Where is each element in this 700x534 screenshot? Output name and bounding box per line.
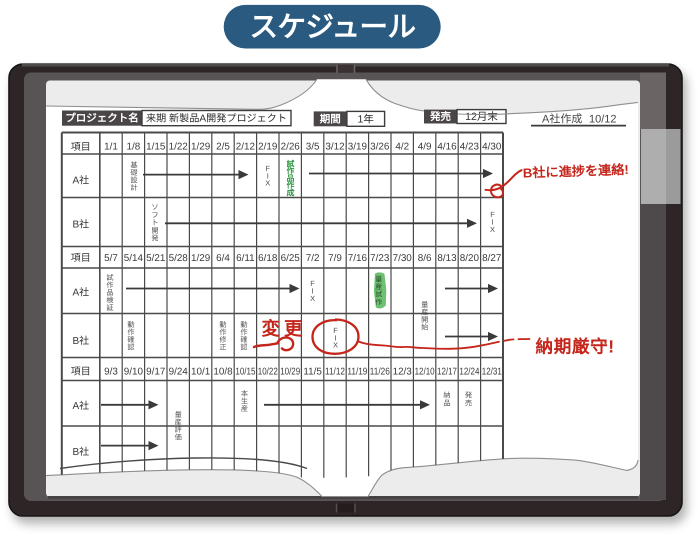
svg-text:動作確認: 動作確認: [240, 320, 247, 351]
svg-text:4/30: 4/30: [482, 142, 502, 153]
svg-text:量産試作: 量産試作: [375, 276, 382, 307]
svg-text:7/16: 7/16: [348, 253, 368, 264]
svg-text:スケジュール: スケジュール: [249, 12, 415, 44]
svg-text:3/26: 3/26: [370, 142, 390, 153]
svg-text:項目: 項目: [71, 253, 91, 264]
svg-text:12/24: 12/24: [459, 367, 479, 378]
svg-text:12/10: 12/10: [415, 367, 435, 378]
svg-text:5/14: 5/14: [124, 253, 144, 264]
svg-text:11/19: 11/19: [347, 367, 367, 378]
svg-text:5/28: 5/28: [169, 253, 189, 264]
svg-text:12/17: 12/17: [437, 367, 457, 378]
svg-text:4/9: 4/9: [418, 142, 432, 153]
svg-text:5/21: 5/21: [146, 253, 166, 264]
svg-text:項目: 項目: [71, 367, 91, 378]
svg-text:納品: 納品: [443, 391, 450, 408]
svg-text:7/9: 7/9: [328, 253, 342, 264]
svg-text:発売: 発売: [429, 110, 451, 123]
svg-text:1/29: 1/29: [191, 142, 211, 153]
svg-text:9/3: 9/3: [104, 367, 118, 378]
svg-text:B社: B社: [72, 446, 89, 458]
svg-text:2/5: 2/5: [216, 142, 230, 153]
svg-text:A社: A社: [72, 175, 89, 187]
svg-text:8/27: 8/27: [482, 253, 501, 264]
svg-text:11/26: 11/26: [370, 367, 390, 378]
svg-text:来期 新製品A開発プロジェクト: 来期 新製品A開発プロジェクト: [146, 112, 287, 124]
svg-text:基礎設計: 基礎設計: [130, 161, 137, 192]
svg-text:納期厳守!: 納期厳守!: [536, 337, 615, 357]
svg-text:7/2: 7/2: [306, 253, 320, 264]
svg-text:7/23: 7/23: [370, 253, 390, 264]
svg-text:12/31: 12/31: [482, 367, 502, 378]
svg-text:9/10: 9/10: [124, 367, 144, 378]
svg-text:10/22: 10/22: [258, 367, 278, 378]
svg-text:10/12: 10/12: [589, 114, 617, 126]
svg-text:12/3: 12/3: [393, 367, 413, 378]
svg-text:A社: A社: [72, 286, 89, 298]
svg-text:1/29: 1/29: [191, 253, 211, 264]
svg-text:試作品検証: 試作品検証: [106, 273, 114, 312]
svg-text:量産評価: 量産評価: [175, 410, 182, 441]
svg-text:1/15: 1/15: [146, 142, 166, 153]
svg-text:4/16: 4/16: [437, 142, 457, 153]
svg-text:9/24: 9/24: [169, 367, 189, 378]
svg-text:1年: 1年: [358, 113, 375, 125]
svg-text:量産開始: 量産開始: [421, 300, 428, 331]
svg-text:8/13: 8/13: [437, 253, 457, 264]
svg-text:2/26: 2/26: [281, 142, 301, 153]
svg-text:4/23: 4/23: [460, 142, 480, 153]
svg-text:4/2: 4/2: [395, 142, 409, 153]
svg-text:プロジェクト名: プロジェクト名: [65, 112, 139, 125]
svg-text:11/5: 11/5: [303, 367, 322, 378]
svg-text:8/20: 8/20: [460, 253, 480, 264]
svg-text:3/12: 3/12: [325, 142, 344, 153]
svg-text:1/22: 1/22: [169, 142, 188, 153]
svg-text:発売: 発売: [465, 391, 472, 408]
svg-text:試作品作成: 試作品作成: [287, 160, 295, 198]
svg-text:12月末: 12月末: [465, 111, 498, 123]
svg-text:B社: B社: [72, 335, 89, 347]
svg-text:10/15: 10/15: [235, 367, 255, 378]
svg-text:6/11: 6/11: [236, 253, 255, 264]
svg-text:期間: 期間: [320, 113, 341, 125]
svg-text:動作修正: 動作修正: [219, 320, 226, 351]
svg-text:10/8: 10/8: [213, 367, 233, 378]
svg-text:A社: A社: [72, 400, 89, 412]
svg-text:8/6: 8/6: [418, 253, 432, 264]
svg-text:6/4: 6/4: [216, 253, 230, 264]
svg-text:6/25: 6/25: [281, 253, 301, 264]
svg-text:11/12: 11/12: [325, 367, 345, 378]
svg-text:動作確認: 動作確認: [127, 320, 134, 351]
svg-text:項目: 項目: [71, 142, 91, 153]
svg-text:9/17: 9/17: [146, 367, 165, 378]
svg-text:10/1: 10/1: [191, 367, 211, 378]
svg-text:2/19: 2/19: [258, 142, 278, 153]
svg-text:B社: B社: [72, 219, 89, 231]
svg-text:1/1: 1/1: [104, 142, 118, 153]
svg-text:本生産: 本生産: [241, 389, 248, 413]
svg-text:7/30: 7/30: [393, 253, 413, 264]
svg-text:6/18: 6/18: [258, 253, 278, 264]
svg-text:変更: 変更: [262, 318, 307, 339]
svg-text:3/19: 3/19: [348, 142, 368, 153]
svg-text:1/8: 1/8: [127, 142, 141, 153]
svg-text:5/7: 5/7: [104, 253, 118, 264]
svg-text:3/5: 3/5: [306, 142, 320, 153]
svg-text:10/29: 10/29: [280, 367, 300, 378]
svg-text:2/12: 2/12: [236, 142, 255, 153]
svg-text:ソフト開発: ソフト開発: [151, 203, 158, 243]
svg-text:A社作成: A社作成: [542, 113, 582, 126]
